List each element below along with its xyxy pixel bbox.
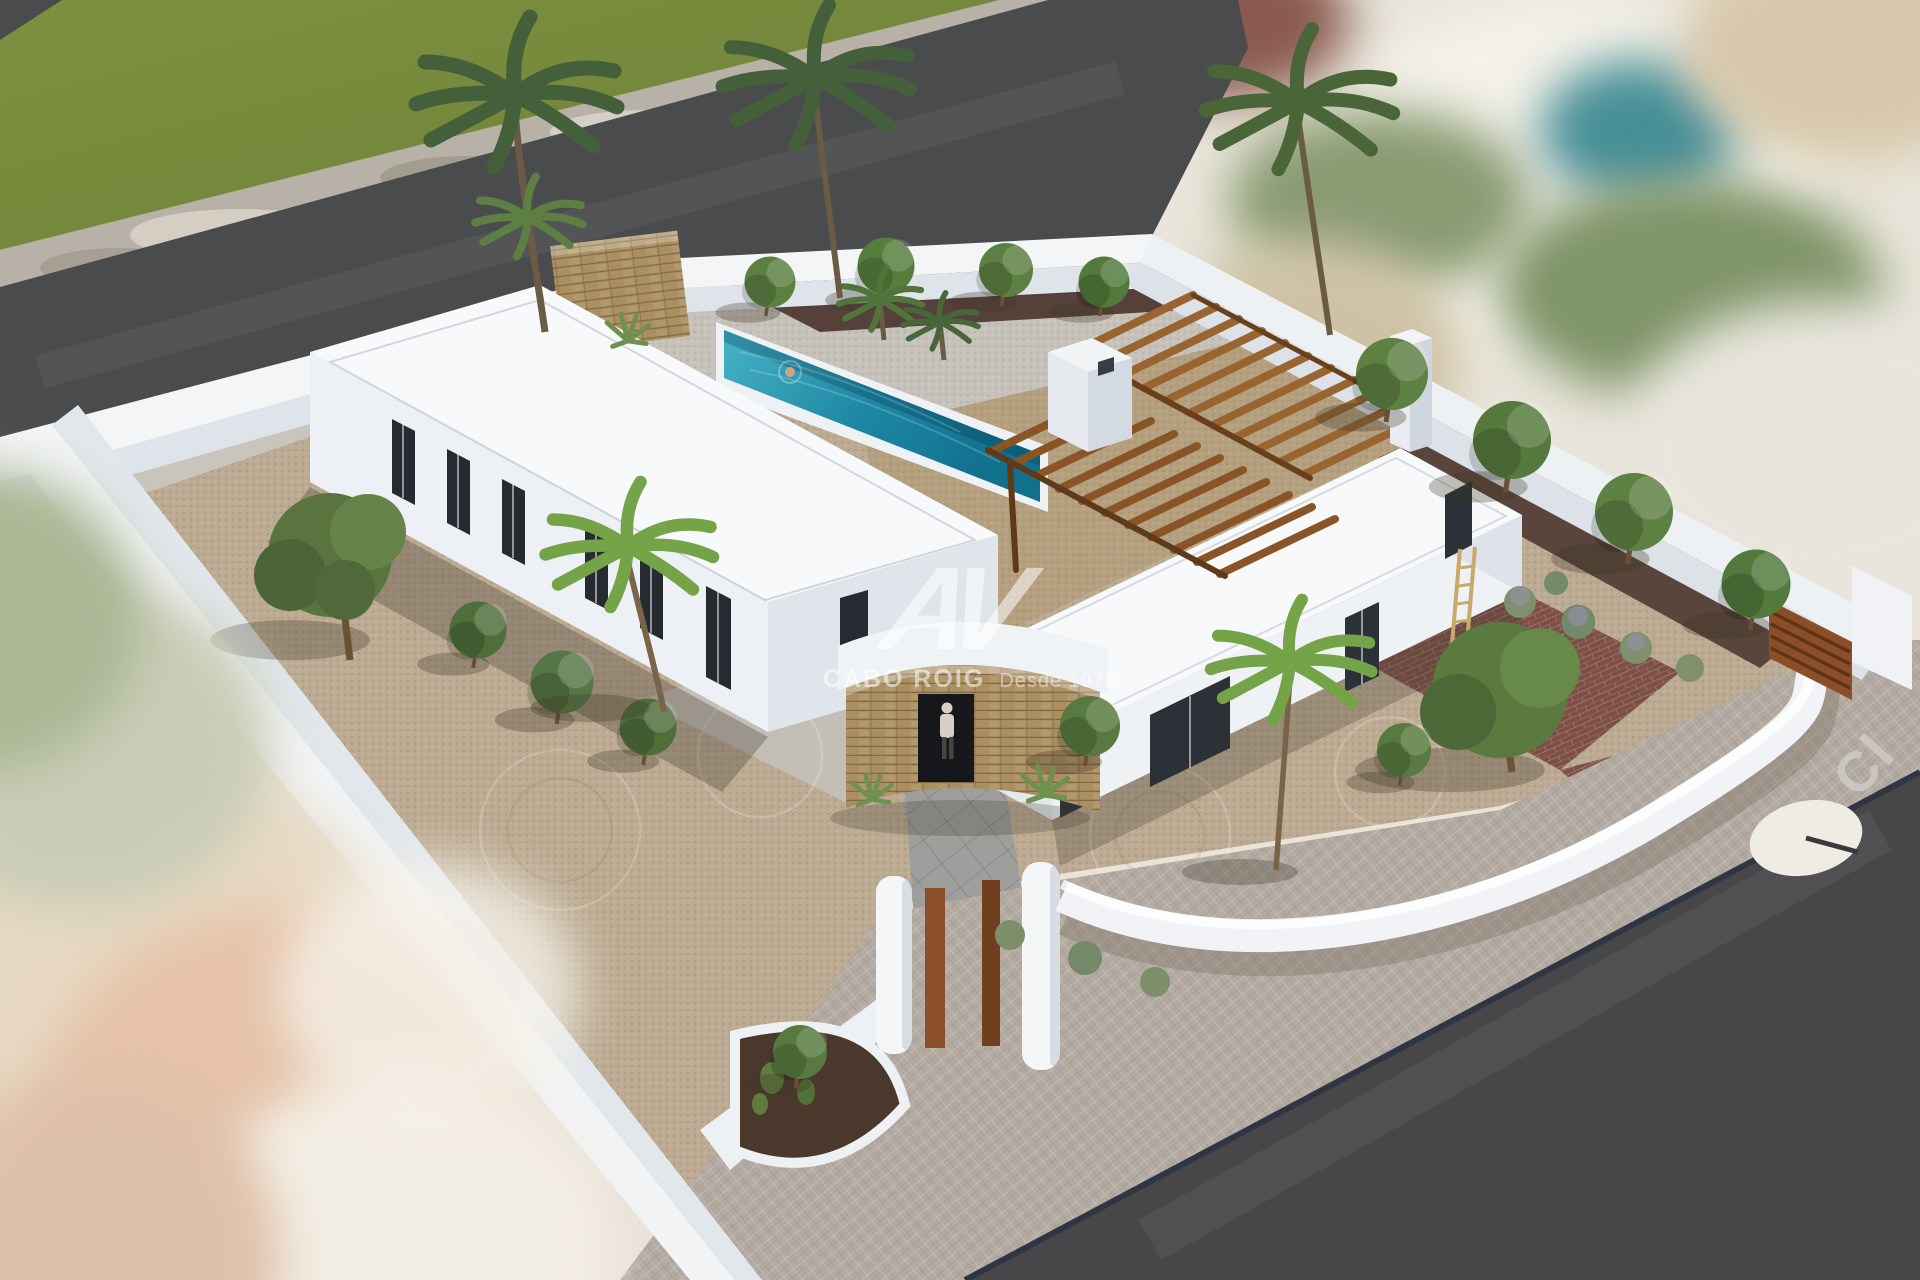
outdoor-fireplace	[1048, 338, 1132, 452]
architectural-render: Cl	[0, 0, 1920, 1280]
villa-scene: Cl	[0, 0, 1920, 1280]
swimmer	[785, 367, 795, 377]
corten-gate-leaf-left	[925, 888, 945, 1048]
corten-gate-leaf-right	[982, 880, 1000, 1046]
